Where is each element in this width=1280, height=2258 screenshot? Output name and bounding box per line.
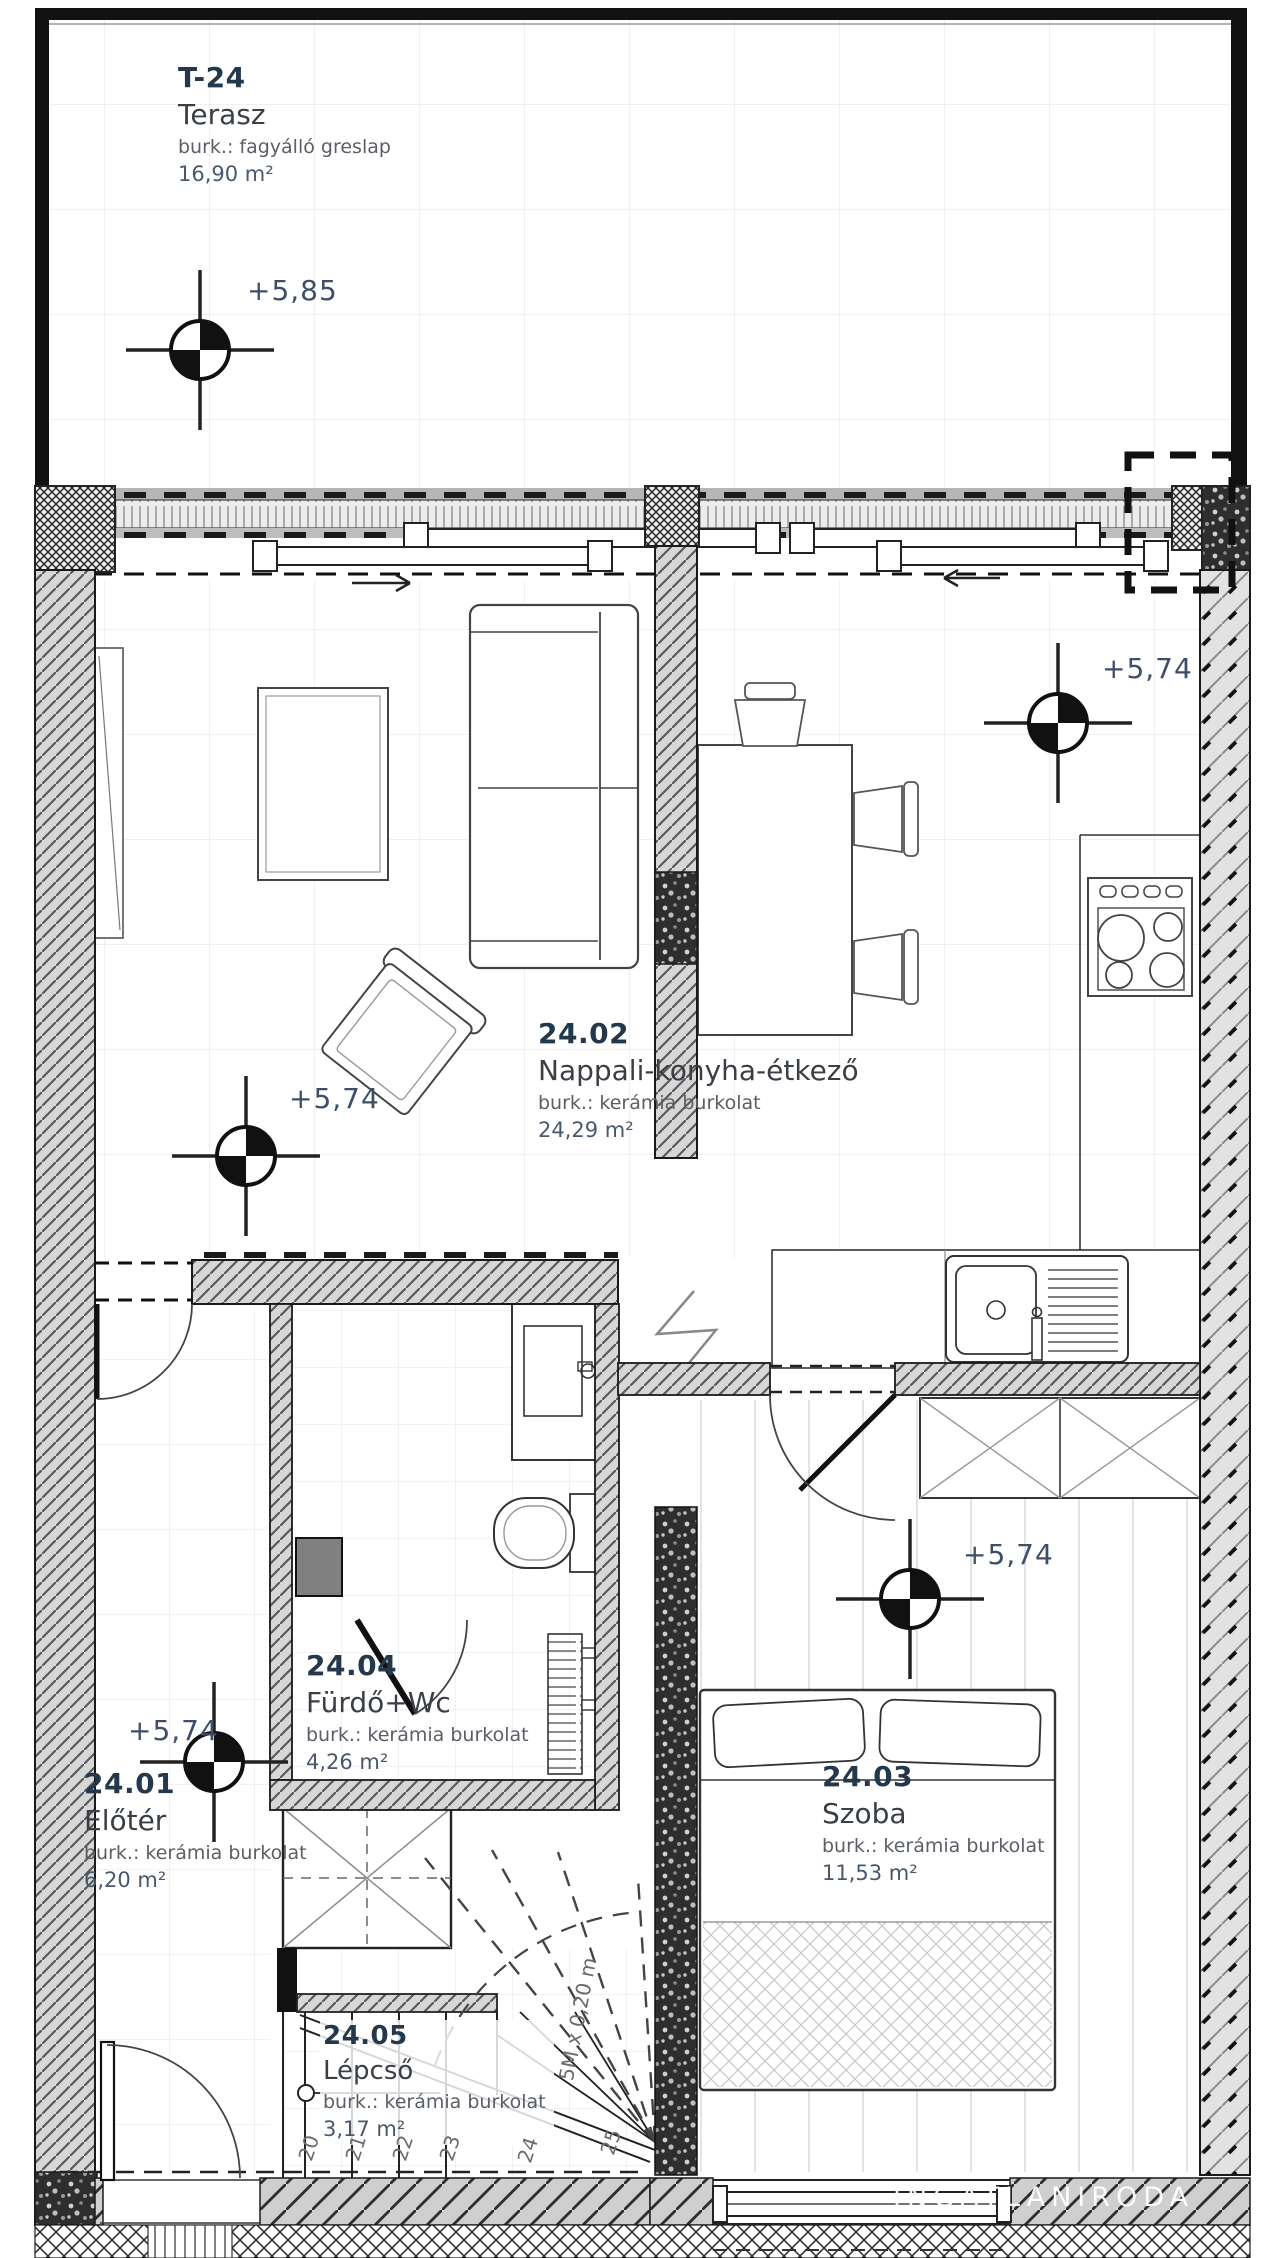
entrance-door-leaf [101,2042,114,2180]
room-name: Fürdő+Wc [306,1689,529,1717]
doormat [148,2225,232,2258]
elevation-label-terrace: +5,85 [247,274,338,307]
room-name: Előtér [84,1807,307,1835]
room-name: Terasz [178,101,391,129]
watermark: INGATLANIRODA [893,2182,1194,2213]
kitchen-sink [946,1256,1128,1362]
elevation-label-hall: +5,74 [128,1714,219,1747]
room-finish: burk.: fagyálló greslap [178,138,391,157]
room-label-furdo: 24.04 Fürdő+Wc burk.: kerámia burkolat 4… [306,1652,529,1773]
room-name: Nappali-konyha-étkező [538,1057,859,1085]
room-area: 24,29 m² [538,1120,859,1141]
room-id: 24.02 [538,1020,859,1048]
room-label-eloter: 24.01 Előtér burk.: kerámia burkolat 6,2… [84,1770,307,1891]
room-area: 6,20 m² [84,1870,307,1891]
room-id: 24.05 [323,2023,546,2049]
floor-plan: T-24 Terasz burk.: fagyálló greslap 16,9… [0,0,1280,2258]
elevation-label-kitchen: +5,74 [1102,652,1193,685]
room-name: Lépcső [323,2058,546,2084]
room-name: Szoba [822,1800,1045,1828]
elevation-label-bedroom: +5,74 [963,1538,1054,1571]
stove [1088,878,1192,996]
sofa [470,605,638,968]
room-finish: burk.: kerámia burkolat [538,1094,859,1113]
room-label-szoba: 24.03 Szoba burk.: kerámia burkolat 11,5… [822,1763,1045,1884]
toilet [494,1494,596,1572]
room-id: 24.01 [84,1770,307,1798]
elevation-label-living: +5,74 [289,1082,380,1115]
washbasin [512,1282,596,1460]
room-area: 4,26 m² [306,1752,529,1773]
room-area: 16,90 m² [178,164,391,185]
room-label-lepcso: 24.05 Lépcső burk.: kerámia burkolat 3,1… [320,2020,554,2145]
room-finish: burk.: kerámia burkolat [84,1844,307,1863]
room-label-nappali: 24.02 Nappali-konyha-étkező burk.: kerám… [538,1020,859,1141]
shaft [296,1538,342,1596]
room-label-terasz: T-24 Terasz burk.: fagyálló greslap 16,9… [178,64,391,185]
coffee-table [258,688,388,880]
room-id: T-24 [178,64,391,92]
room-area: 11,53 m² [822,1863,1045,1884]
room-finish: burk.: kerámia burkolat [306,1726,529,1745]
wardrobe [920,1398,1200,1498]
tv-unit [95,648,123,938]
bed [700,1690,1055,2090]
dining-table [698,745,852,1035]
newel-post [298,2085,314,2101]
room-finish: burk.: kerámia burkolat [323,2093,546,2112]
room-id: 24.04 [306,1652,529,1680]
room-id: 24.03 [822,1763,1045,1791]
room-finish: burk.: kerámia burkolat [822,1837,1045,1856]
